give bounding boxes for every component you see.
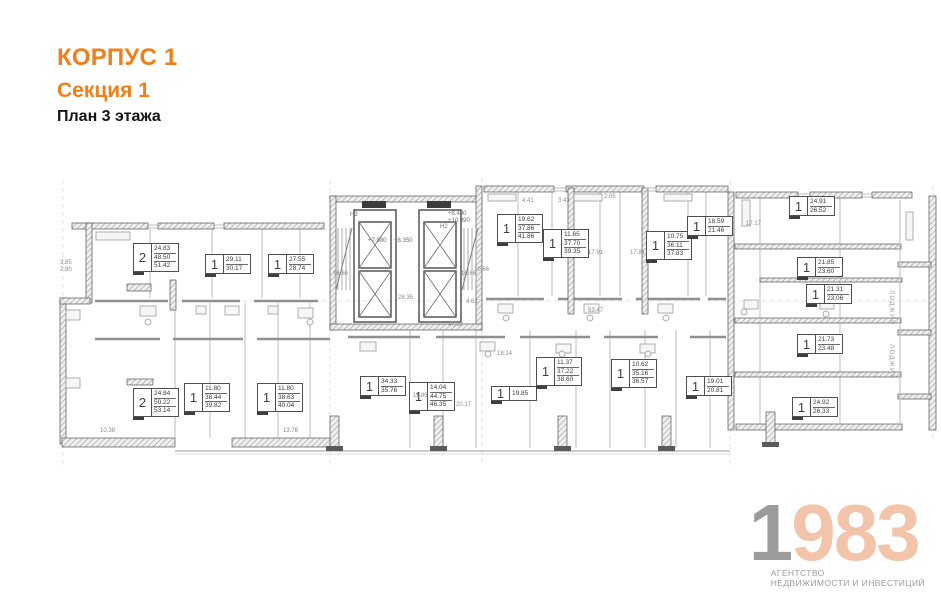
apartment-label: 119.6237.8641.86 [497,214,543,243]
logo-tagline-line2: НЕДВИЖИМОСТИ И ИНВЕСТИЦИЙ [771,578,925,588]
dimension-label: 47.19 [448,322,463,328]
apartment-floor-strip [792,417,803,420]
level-mark: +8.480 [448,211,467,217]
apartment-rooms-count: 1 [492,387,510,400]
apartment-label: 111.3737.2238.60 [536,357,582,386]
apartment-rooms-count: 1 [206,255,224,273]
apartment-areas: 27.5528.74 [287,255,313,273]
apartment-rooms-count: 1 [185,384,203,411]
apartment-floor-strip [646,260,657,263]
level-mark: +10.890 [448,218,470,224]
apartment-floor-strip [687,236,698,239]
dimension-label: 11.86 [413,393,428,399]
apartment-areas: 24.8450.2253.14 [152,389,178,416]
apartment-floor-strip [491,401,502,404]
apartment-rooms-count: 1 [798,258,816,276]
dimension-label: 17.91 [588,250,603,256]
dimension-label: 4.62 [466,299,478,305]
level-mark: +8.350 [394,238,413,244]
apartment-floor-strip [409,411,420,414]
level-mark: +7.980 [368,238,387,244]
apartment-rooms-count: 2 [134,389,152,416]
apartment-areas: 34.3335.76 [379,377,405,395]
apartment-floor-strip [133,417,144,420]
apartment-label: 111.8038.6340.04 [257,383,303,412]
apartment-rooms-count: 1 [688,217,706,235]
apartment-floor-strip [184,412,195,415]
apartment-label: 110.6235.1636.57 [611,359,657,388]
logo-year-gray: 1 [749,488,792,577]
apartment-floor-strip [497,243,508,246]
apartment-floor-strip [536,386,547,389]
apartment-areas: 21.8523.60 [816,258,842,276]
apartment-areas: 29.1130.17 [224,255,250,273]
apartment-floor-strip [268,274,279,277]
apartment-rooms-count: 1 [498,215,516,242]
apartment-label: 121.3123.06 [806,284,852,304]
apartment-floor-strip [797,277,808,280]
dimension-label: 16.66 [333,271,348,277]
apartment-rooms-count: 1 [687,377,705,395]
level-mark: Н3 [350,212,358,218]
apartment-rooms-count: 1 [647,232,665,259]
apartment-areas: 21.3123.06 [825,285,851,303]
apartment-floor-strip [205,274,216,277]
apartment-floor-strip [360,396,371,399]
apartment-label: 119.0120.81 [686,376,732,396]
apartment-rooms-count: 1 [361,377,379,395]
apartment-areas: 14.0444.7546.35 [428,383,454,410]
apartment-areas: 24.9226.33 [811,398,837,416]
dimension-label: 2.05 [604,194,616,200]
apartment-areas: 11.6537.7039.35 [562,230,588,257]
apartment-label: 124.9126.52 [789,196,835,216]
apartment-label: 224.8450.2253.14 [133,388,179,417]
apartment-label: 224.8348.5051.42 [133,243,179,272]
apartment-rooms-count: 1 [793,398,811,416]
page: КОРПУС 1 Секция 1 План 3 этажа [0,0,941,600]
apartment-areas: 11.3737.2238.60 [555,358,581,385]
apartment-areas: 11.8038.4439.82 [203,384,229,411]
loggia-label: ЛОДЖИЯ [888,344,894,380]
logo-year-peach: 983 [791,488,918,577]
apartment-floor-strip [686,396,697,399]
apartment-areas: 24.9126.52 [808,197,834,215]
level-mark: Н2 [440,224,448,230]
dimension-label: 17.17 [746,221,761,227]
apartment-label: 124.9226.33 [792,397,838,417]
apartment-floor-strip [806,304,817,307]
dimension-label: 4.41 [522,198,534,204]
apartment-label: 121.7323.48 [797,334,843,354]
dimension-label: 20.17 [456,402,471,408]
apartment-areas: 21.7323.48 [816,335,842,353]
dimension-label: 2.80 [60,267,72,273]
apartment-areas: 10.6235.1636.57 [630,360,656,387]
apartment-label: 134.3335.76 [360,376,406,396]
apartment-rooms-count: 1 [807,285,825,303]
apartment-rooms-count: 1 [790,197,808,215]
apartment-floor-strip [789,216,800,219]
apartment-rooms-count: 1 [798,335,816,353]
apartment-rooms-count: 1 [537,358,555,385]
apartment-label: 110.7536.1137.83 [646,231,692,260]
apartment-label: 111.8038.4439.82 [184,383,230,412]
apartment-floor-strip [133,272,144,275]
apartment-areas: 19.0120.81 [705,377,731,395]
apartment-rooms-count: 1 [258,384,276,411]
dimension-label: 17.81 [630,250,645,256]
loggia-label: ЛОДЖИЯ [888,290,894,326]
dimension-label: 3.85 [60,260,72,266]
dimension-label: 28.35 [398,295,413,301]
apartment-floor-strip [257,412,268,415]
apartment-label: 121.8523.60 [797,257,843,277]
apartment-areas: 19.85 [510,387,536,400]
apartment-areas: 19.6237.8641.86 [516,215,542,242]
apartment-rooms-count: 1 [269,255,287,273]
apartment-label: 119.85 [491,386,537,401]
apartment-floor-strip [797,354,808,357]
logo: 1983 АГЕНТСТВО НЕДВИЖИМОСТИ И ИНВЕСТИЦИЙ [749,503,925,588]
apartment-rooms-count: 1 [544,230,562,257]
logo-year: 1983 [749,503,925,564]
apartment-label: 118.5921.46 [687,216,733,236]
dimension-label: 18.14 [497,351,512,357]
apartment-label: 111.6537.7039.35 [543,229,589,258]
apartment-floor-strip [543,258,554,261]
apartment-areas: 11.8038.6340.04 [276,384,302,411]
dimension-label: 10.38 [100,428,115,434]
dimension-label: 13.78 [283,428,298,434]
dimension-label: 10.66 [474,267,489,273]
apartment-areas: 18.5921.46 [706,217,732,235]
apartment-areas: 24.8348.5051.42 [152,244,178,271]
apartment-label: 129.1130.17 [205,254,251,274]
apartment-floor-strip [611,388,622,391]
apartment-label: 127.5528.74 [268,254,314,274]
apartment-rooms-count: 1 [612,360,630,387]
dimension-label: 3.43 [558,198,570,204]
apartment-rooms-count: 2 [134,244,152,271]
dimension-label: 53.47 [588,308,603,314]
